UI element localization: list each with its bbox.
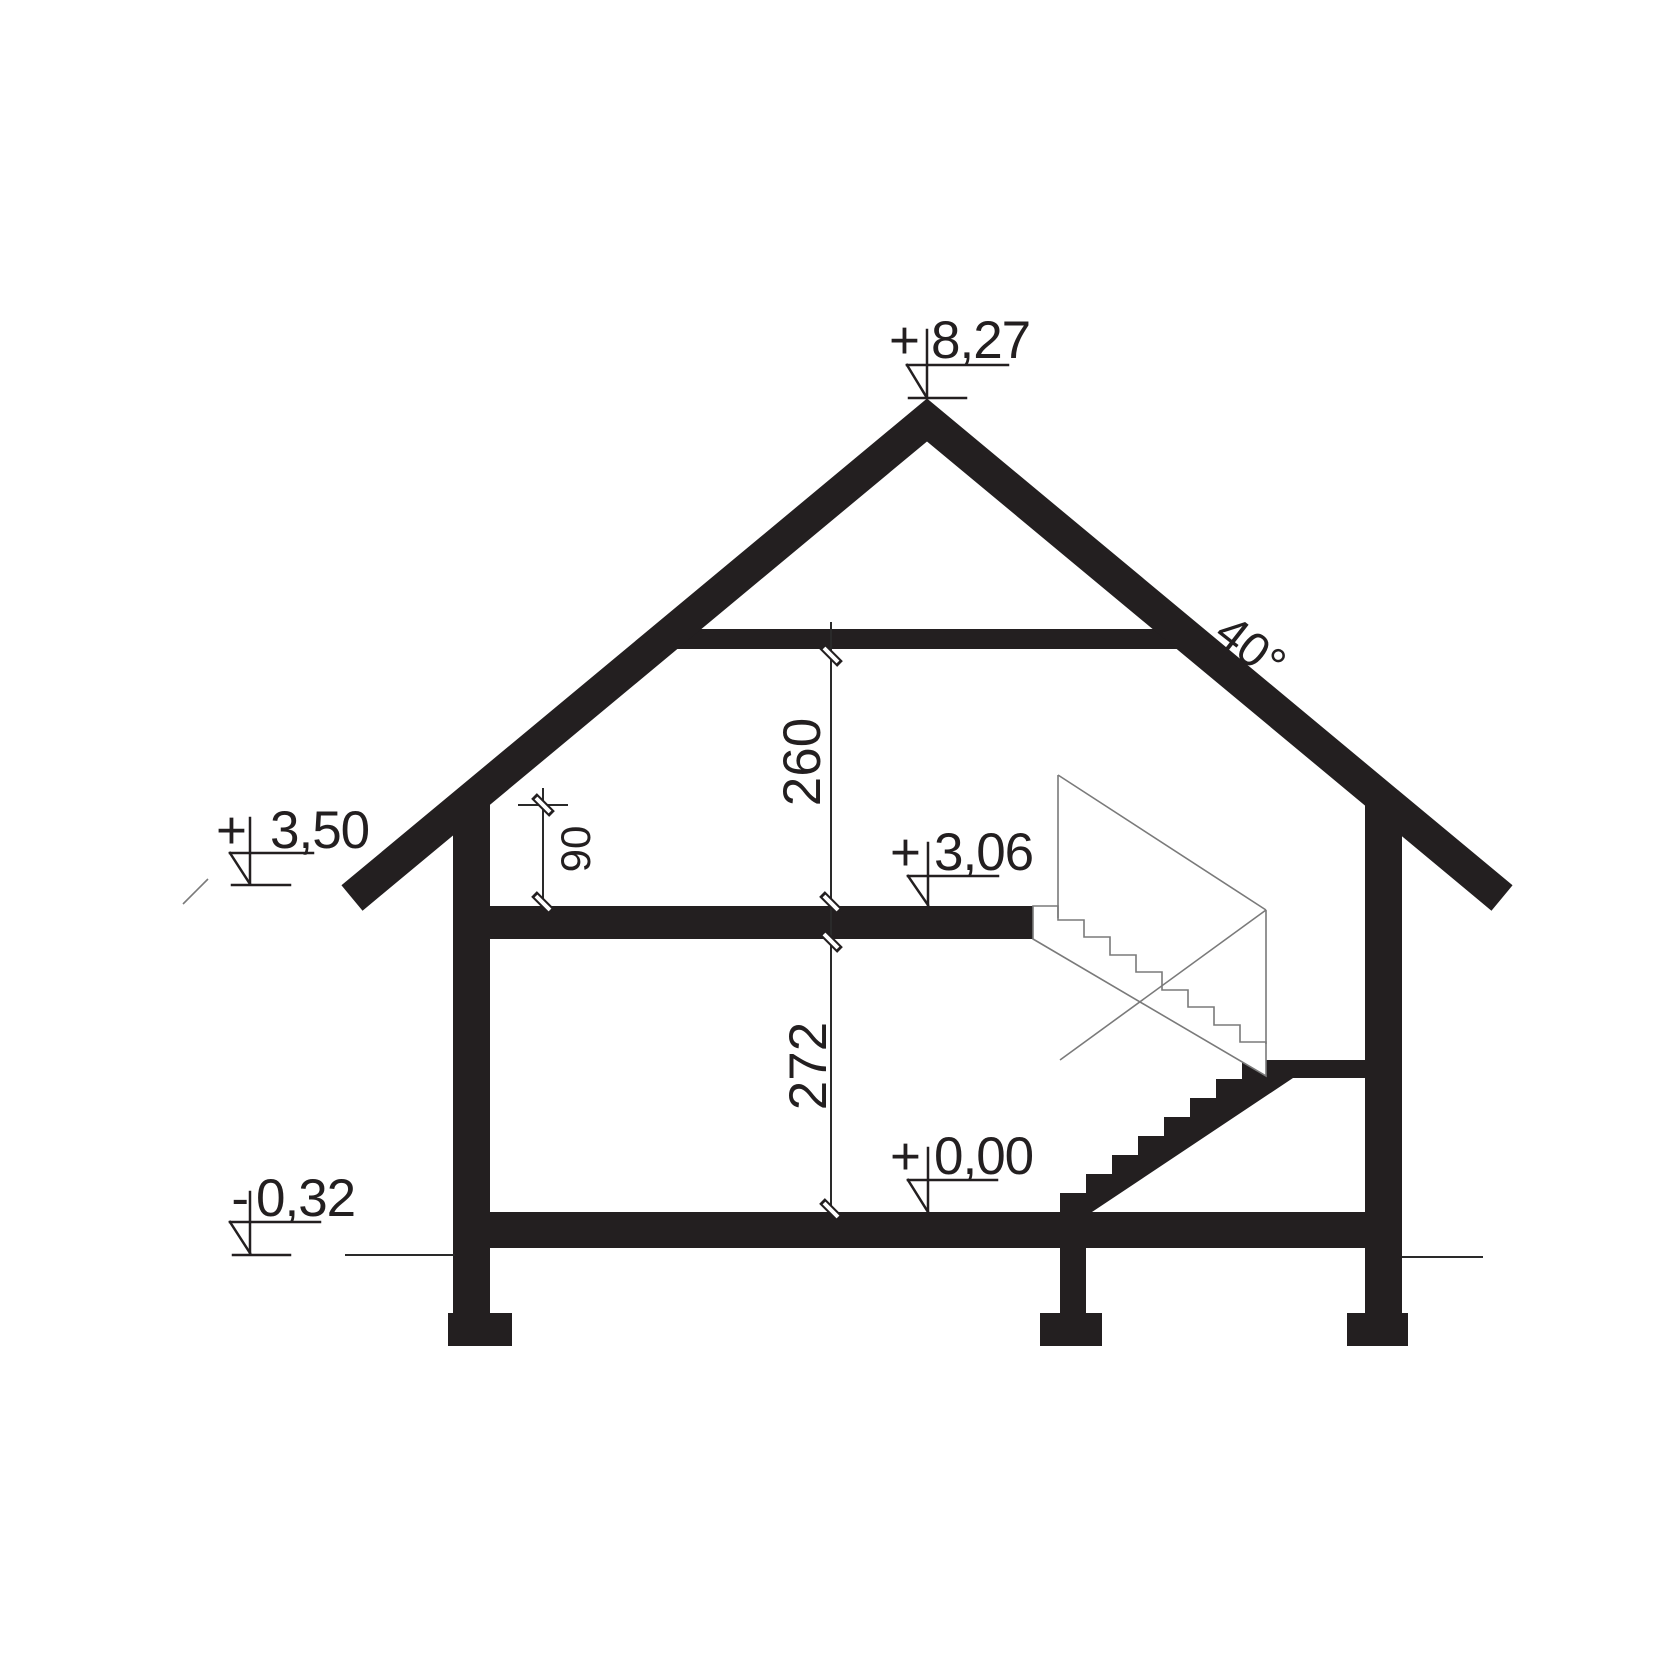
level-sign-terrain: -	[231, 1169, 248, 1228]
staircase	[1033, 775, 1365, 1212]
level-value-eaves: 3,50	[270, 801, 369, 860]
level-sign-attic-floor: +	[890, 823, 920, 882]
level-marker-eaves: + 3,50	[216, 801, 369, 885]
level-value-attic-floor: 3,06	[934, 823, 1033, 882]
left-footing	[448, 1313, 512, 1346]
level-value-ground-floor: 0,00	[934, 1127, 1033, 1186]
stair-rail-slope	[1058, 775, 1266, 910]
level-value-terrain: 0,32	[256, 1169, 355, 1228]
dim-ground-floor-height: 272	[779, 1022, 838, 1110]
dim-attic-height: 260	[773, 718, 832, 806]
dimension-labels: 260 272 90 40°	[552, 605, 1295, 1110]
stair-upper-flight	[1033, 906, 1266, 1076]
collar-beam	[660, 629, 1196, 649]
stair-lower-flight	[1060, 1060, 1365, 1212]
level-marker-attic-floor: + 3,06	[890, 823, 1033, 905]
level-marker-terrain: - 0,32	[230, 1169, 355, 1255]
house-section-drawing: + 8,27 + 3,50 + 3,06 + 0,00	[0, 0, 1680, 1679]
middle-pier	[1060, 1248, 1086, 1313]
level-sign-eaves: +	[216, 801, 246, 860]
level-value-ridge: 8,27	[931, 311, 1030, 370]
middle-footing	[1040, 1313, 1102, 1346]
roof-rafters	[352, 420, 1502, 898]
attic-floor-slab	[453, 906, 1033, 939]
level-marker-ground-floor: + 0,00	[890, 1127, 1033, 1212]
dim-knee-wall-height: 90	[552, 826, 599, 873]
right-footing	[1347, 1313, 1408, 1346]
level-marker-ridge: + 8,27	[889, 311, 1030, 398]
ground-floor-slab	[453, 1212, 1402, 1248]
level-sign-ridge: +	[889, 311, 919, 370]
eaves-leader-line	[183, 879, 208, 904]
level-sign-ground-floor: +	[890, 1127, 920, 1186]
